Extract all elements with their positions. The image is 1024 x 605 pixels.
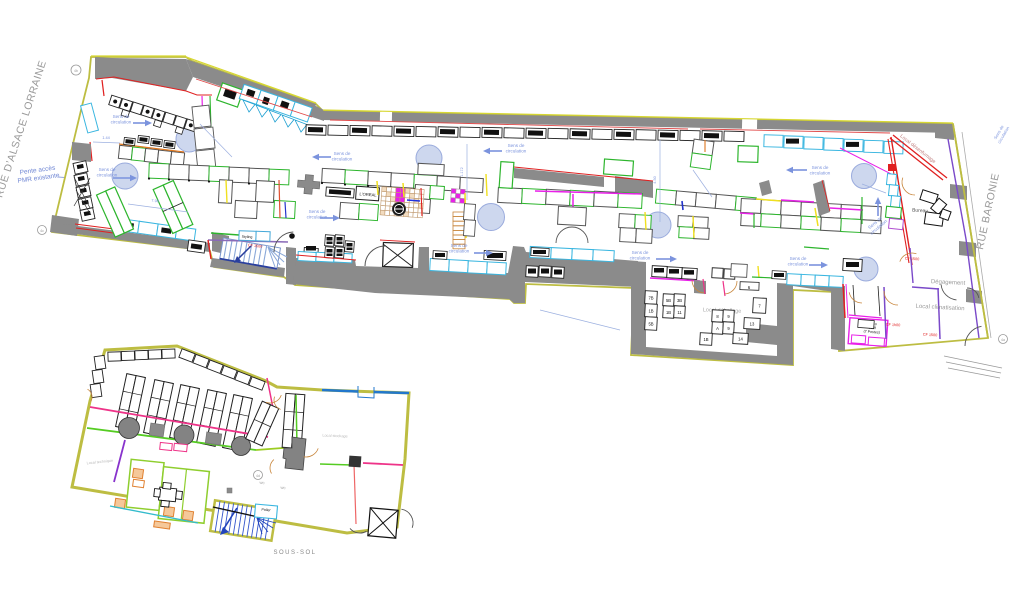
- svg-text:CF 1500: CF 1500: [923, 333, 938, 338]
- svg-text:11: 11: [677, 310, 682, 315]
- svg-text:CF 1500: CF 1500: [905, 257, 920, 262]
- svg-text:circulation: circulation: [788, 262, 809, 267]
- svg-text:circulation: circulation: [97, 173, 118, 178]
- svg-text:14: 14: [738, 336, 743, 341]
- svg-text:1B: 1B: [648, 308, 653, 313]
- svg-text:13: 13: [750, 321, 755, 326]
- svg-text:Sens de: Sens de: [113, 114, 130, 119]
- svg-text:Sens de: Sens de: [309, 209, 326, 214]
- svg-text:Sens de: Sens de: [99, 167, 116, 172]
- svg-text:Bureau: Bureau: [912, 207, 929, 214]
- svg-text:1.172: 1.172: [460, 167, 464, 177]
- svg-text:CF 1h00: CF 1h00: [886, 323, 901, 328]
- svg-text:Sens de: Sens de: [812, 165, 829, 170]
- svg-text:SOUS-SOL: SOUS-SOL: [273, 550, 316, 556]
- svg-text:4b: 4b: [74, 69, 78, 73]
- svg-text:Sens de: Sens de: [508, 143, 525, 148]
- svg-text:circulation: circulation: [810, 171, 831, 176]
- svg-text:1.44: 1.44: [102, 136, 110, 140]
- svg-text:RUE BARONIE: RUE BARONIE: [974, 172, 1002, 251]
- svg-text:4c: 4c: [40, 229, 44, 233]
- svg-text:3B: 3B: [677, 298, 682, 303]
- svg-text:Sens de: Sens de: [632, 250, 649, 255]
- svg-text:5B: 5B: [666, 298, 671, 303]
- svg-text:4.50: 4.50: [653, 176, 657, 183]
- svg-text:circulation: circulation: [332, 157, 353, 162]
- svg-text:1B: 1B: [703, 337, 708, 342]
- svg-text:circulation: circulation: [630, 256, 651, 261]
- svg-text:circulation: circulation: [111, 120, 132, 125]
- svg-text:4a: 4a: [1001, 338, 1005, 342]
- svg-text:Sens de: Sens de: [790, 256, 807, 261]
- svg-text:5B: 5B: [648, 321, 653, 326]
- svg-text:7.98: 7.98: [151, 199, 159, 204]
- svg-text:7B: 7B: [648, 295, 653, 300]
- svg-text:circulation: circulation: [449, 249, 470, 254]
- svg-text:A: A: [716, 326, 719, 331]
- svg-text:Sens de: Sens de: [451, 243, 468, 248]
- svg-text:Sens de: Sens de: [334, 151, 351, 156]
- svg-text:4d: 4d: [256, 474, 260, 478]
- svg-text:Styling: Styling: [242, 235, 253, 239]
- svg-text:1B: 1B: [666, 310, 671, 315]
- svg-text:circulation: circulation: [506, 149, 527, 154]
